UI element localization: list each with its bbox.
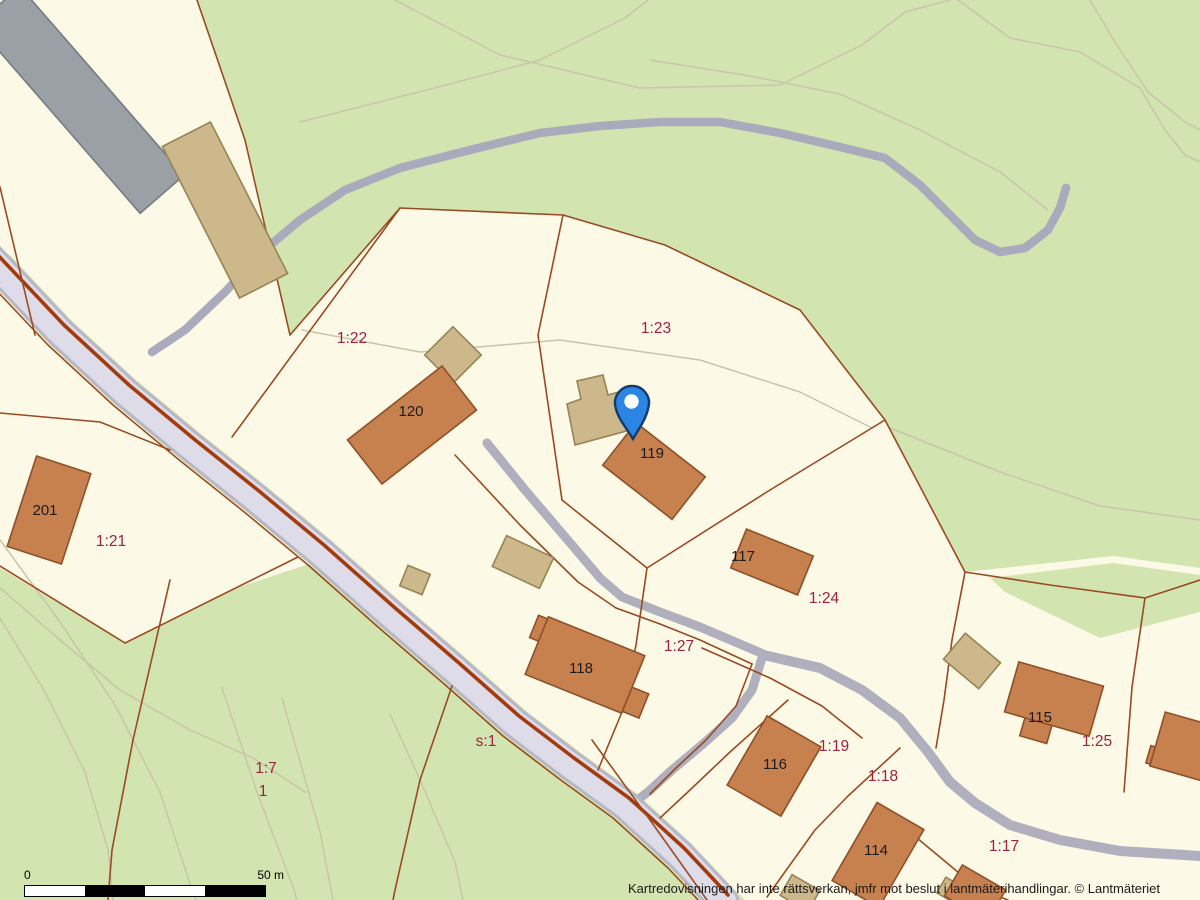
building-label-119: 119 bbox=[640, 445, 664, 462]
parcel-label-1: 1 bbox=[259, 783, 268, 800]
building-label-114: 114 bbox=[864, 842, 888, 859]
map-frame: 1201192011171181161141151:221:231:211:24… bbox=[0, 0, 1200, 900]
parcel-label-1-27: 1:27 bbox=[664, 638, 694, 655]
parcel-label-s-1: s:1 bbox=[476, 733, 497, 750]
parcel-label-1-21: 1:21 bbox=[96, 533, 126, 550]
parcel-label-1-25: 1:25 bbox=[1082, 733, 1112, 750]
map-canvas[interactable]: 1201192011171181161141151:221:231:211:24… bbox=[0, 0, 1200, 900]
scale-bar-max-label: 50 m bbox=[257, 868, 284, 882]
building-label-120: 120 bbox=[398, 403, 423, 420]
parcel-label-1-18: 1:18 bbox=[868, 768, 898, 785]
attribution-text: Kartredovisningen har inte rättsverkan, … bbox=[628, 881, 1160, 896]
building-label-201: 201 bbox=[32, 502, 57, 519]
parcel-label-1-23: 1:23 bbox=[641, 320, 671, 337]
parcel-label-1-17: 1:17 bbox=[989, 838, 1019, 855]
location-pin-dot bbox=[624, 394, 638, 408]
parcel-label-1-24: 1:24 bbox=[809, 590, 840, 607]
scale-bar-graphic bbox=[24, 885, 266, 897]
building-label-118: 118 bbox=[569, 660, 593, 677]
parcel-label-1-7: 1:7 bbox=[255, 760, 277, 777]
building-label-115: 115 bbox=[1028, 709, 1052, 726]
building-label-116: 116 bbox=[763, 756, 787, 773]
scale-bar: 0 50 m bbox=[24, 868, 266, 898]
parcel-label-1-22: 1:22 bbox=[337, 330, 367, 347]
scale-bar-min-label: 0 bbox=[24, 868, 31, 882]
building-label-117: 117 bbox=[731, 548, 755, 565]
parcel-label-1-19: 1:19 bbox=[819, 738, 849, 755]
